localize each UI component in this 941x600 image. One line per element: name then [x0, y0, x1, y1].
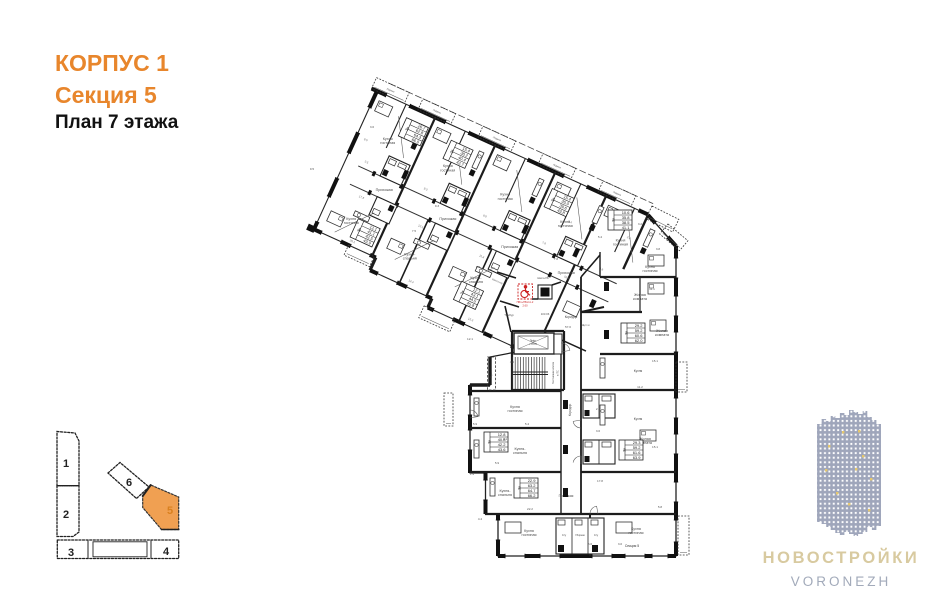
svg-text:1: 1	[63, 458, 69, 470]
svg-text:Лестничная клетка: Лестничная клетка	[552, 361, 555, 384]
svg-text:11.1: 11.1	[649, 287, 655, 291]
svg-text:3.1: 3.1	[503, 437, 508, 441]
svg-text:5.9: 5.9	[473, 422, 478, 426]
svg-text:Тамбур: Тамбур	[504, 313, 514, 317]
svg-text:57.0: 57.0	[565, 325, 571, 329]
svg-text:комната: комната	[655, 333, 670, 337]
svg-text:ПБ1+ПБН А-2: ПБ1+ПБН А-2	[517, 300, 534, 304]
svg-text:3к: 3к	[624, 331, 629, 335]
svg-text:4: 4	[163, 546, 170, 558]
svg-text:Коридор: Коридор	[565, 315, 578, 319]
svg-text:17.8: 17.8	[597, 479, 603, 483]
svg-text:3: 3	[68, 547, 74, 559]
svg-text:7.8: 7.8	[554, 257, 559, 261]
svg-text:2.60: 2.60	[522, 303, 528, 307]
svg-text:гостиная: гостиная	[643, 269, 658, 273]
svg-text:Уборная: Уборная	[575, 534, 585, 537]
svg-text:9.3: 9.3	[435, 204, 440, 208]
svg-text:НОВОСТРОЙКИ: НОВОСТРОЙКИ	[763, 548, 920, 567]
svg-text:5.8: 5.8	[658, 505, 663, 509]
svg-text:11.2: 11.2	[637, 385, 643, 389]
svg-text:гостиная: гостиная	[508, 409, 523, 413]
svg-text:3к: 3к	[517, 486, 522, 490]
svg-text:5.9: 5.9	[495, 461, 500, 465]
svg-text:5.6: 5.6	[588, 542, 593, 546]
svg-text:7.5: 7.5	[412, 229, 417, 233]
svg-text:3к: 3к	[622, 448, 627, 452]
svg-text:Секция 5: Секция 5	[55, 82, 157, 108]
svg-text:41.1: 41.1	[622, 225, 631, 230]
svg-text:15.1: 15.1	[652, 359, 658, 363]
svg-text:Лоджия: Лоджия	[491, 369, 493, 378]
svg-text:5.4: 5.4	[598, 235, 603, 239]
svg-text:66.2: 66.2	[528, 493, 537, 498]
svg-text:Коридор: Коридор	[568, 403, 572, 416]
svg-text:гостиная: гостиная	[613, 243, 628, 247]
svg-text:3.2: 3.2	[638, 222, 643, 226]
svg-text:5: 5	[167, 505, 173, 517]
svg-text:1.9: 1.9	[470, 472, 475, 476]
svg-text:3к: 3к	[487, 440, 492, 444]
svg-text:Прихожая: Прихожая	[558, 271, 575, 275]
svg-text:9.5: 9.5	[310, 167, 315, 171]
svg-text:гостиная: гостиная	[440, 168, 455, 172]
svg-text:4.6: 4.6	[510, 360, 515, 364]
svg-text:гостиная: гостиная	[380, 141, 395, 145]
svg-text:22.2: 22.2	[527, 507, 533, 511]
svg-text:Кухня: Кухня	[634, 369, 643, 373]
svg-text:гостиная: гостиная	[522, 533, 537, 537]
svg-text:3.6: 3.6	[370, 125, 375, 129]
svg-text:VORONEZH: VORONEZH	[791, 574, 892, 589]
svg-text:Лифт: Лифт	[530, 339, 537, 343]
svg-text:с ППП: с ППП	[529, 342, 537, 346]
svg-text:2.8: 2.8	[596, 407, 601, 411]
svg-text:Секция 5: Секция 5	[625, 544, 639, 548]
svg-text:План 7 этажа: План 7 этажа	[55, 112, 179, 133]
svg-text:2: 2	[63, 509, 69, 521]
svg-text:гостиная: гостиная	[629, 531, 644, 535]
svg-text:Прихожая: Прихожая	[439, 217, 456, 221]
svg-text:3.0: 3.0	[618, 542, 623, 546]
svg-text:4.4: 4.4	[478, 517, 483, 521]
svg-text:6: 6	[126, 477, 132, 489]
svg-text:Шахта-НВ: Шахта-НВ	[537, 277, 549, 280]
svg-text:63.9: 63.9	[633, 455, 642, 460]
svg-text:комната: комната	[633, 297, 648, 301]
svg-text:Прихожая: Прихожая	[501, 245, 518, 249]
svg-text:62.0: 62.0	[635, 338, 644, 343]
svg-text:Прихожая: Прихожая	[376, 188, 393, 192]
svg-text:15.1: 15.1	[652, 445, 658, 449]
svg-text:С/у: С/у	[562, 533, 567, 537]
svg-text:спальня: спальня	[469, 280, 483, 284]
svg-text:спальня: спальня	[513, 451, 527, 455]
svg-text:3.6: 3.6	[596, 429, 601, 433]
svg-text:3.8: 3.8	[656, 247, 661, 251]
svg-text:103.06: 103.06	[541, 312, 550, 316]
svg-text:КОРПУС 1: КОРПУС 1	[55, 50, 169, 76]
svg-text:5.4: 5.4	[525, 422, 530, 426]
svg-text:гостиная: гостиная	[344, 221, 359, 225]
svg-text:12.1: 12.1	[467, 337, 473, 341]
svg-text:гостиная: гостиная	[558, 224, 573, 228]
svg-text:спальня: спальня	[498, 493, 512, 497]
svg-text:спальня: спальня	[403, 257, 417, 261]
svg-text:Кухня: Кухня	[634, 417, 643, 421]
svg-text:С/у: С/у	[594, 533, 599, 537]
svg-text:43.6: 43.6	[498, 447, 507, 452]
svg-text:гостиная: гостиная	[498, 197, 513, 201]
svg-text:8.0: 8.0	[476, 265, 481, 269]
svg-text:3к: 3к	[611, 218, 616, 222]
svg-text:в ПС: в ПС	[557, 370, 560, 376]
svg-text:Щит эт.: Щит эт.	[582, 324, 591, 327]
